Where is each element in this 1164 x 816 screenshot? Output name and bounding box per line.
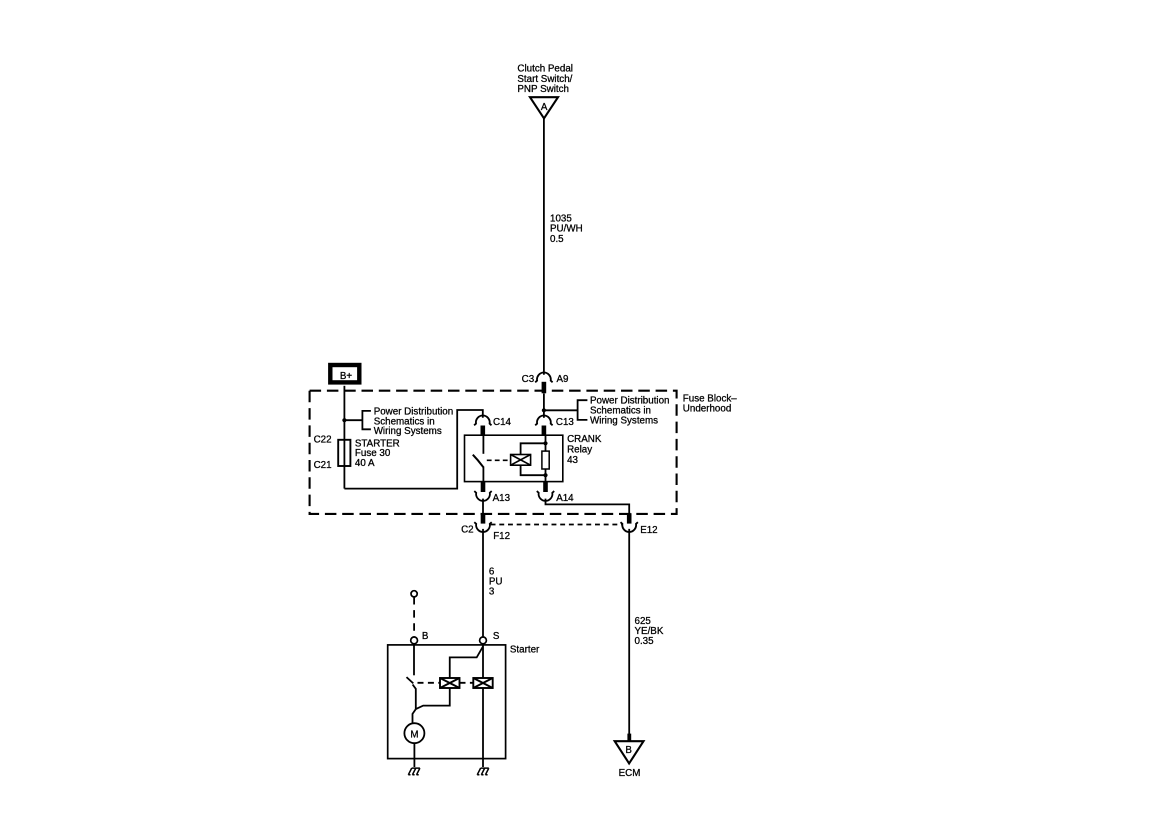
svg-text:ECM: ECM xyxy=(619,768,641,779)
svg-text:C22: C22 xyxy=(314,435,332,446)
svg-text:B+: B+ xyxy=(340,371,353,382)
svg-text:A9: A9 xyxy=(557,374,569,385)
svg-text:C14: C14 xyxy=(493,417,512,428)
svg-text:F12: F12 xyxy=(493,531,510,542)
svg-text:B: B xyxy=(422,631,429,642)
svg-text:C13: C13 xyxy=(556,417,575,428)
svg-text:Relay: Relay xyxy=(567,445,592,456)
svg-text:A13: A13 xyxy=(493,493,511,504)
svg-text:43: 43 xyxy=(567,455,578,466)
svg-text:0.35: 0.35 xyxy=(635,636,655,647)
svg-text:Wiring Systems: Wiring Systems xyxy=(590,415,658,426)
svg-text:E12: E12 xyxy=(640,525,657,536)
svg-text:Underhood: Underhood xyxy=(683,403,731,414)
svg-text:Wiring Systems: Wiring Systems xyxy=(374,426,442,437)
svg-text:M: M xyxy=(410,729,418,740)
svg-text:0.5: 0.5 xyxy=(550,234,564,245)
svg-text:CRANK: CRANK xyxy=(567,434,602,445)
svg-text:S: S xyxy=(493,631,500,642)
svg-text:40 A: 40 A xyxy=(355,458,375,469)
svg-text:C3: C3 xyxy=(522,374,535,385)
svg-text:PNP Switch: PNP Switch xyxy=(517,84,569,95)
svg-text:C2: C2 xyxy=(461,525,474,536)
svg-text:A: A xyxy=(541,102,548,113)
svg-text:B: B xyxy=(625,745,632,756)
svg-text:3: 3 xyxy=(489,587,495,598)
svg-text:Starter: Starter xyxy=(510,644,540,655)
svg-text:A14: A14 xyxy=(556,493,574,504)
svg-text:C21: C21 xyxy=(314,460,332,471)
